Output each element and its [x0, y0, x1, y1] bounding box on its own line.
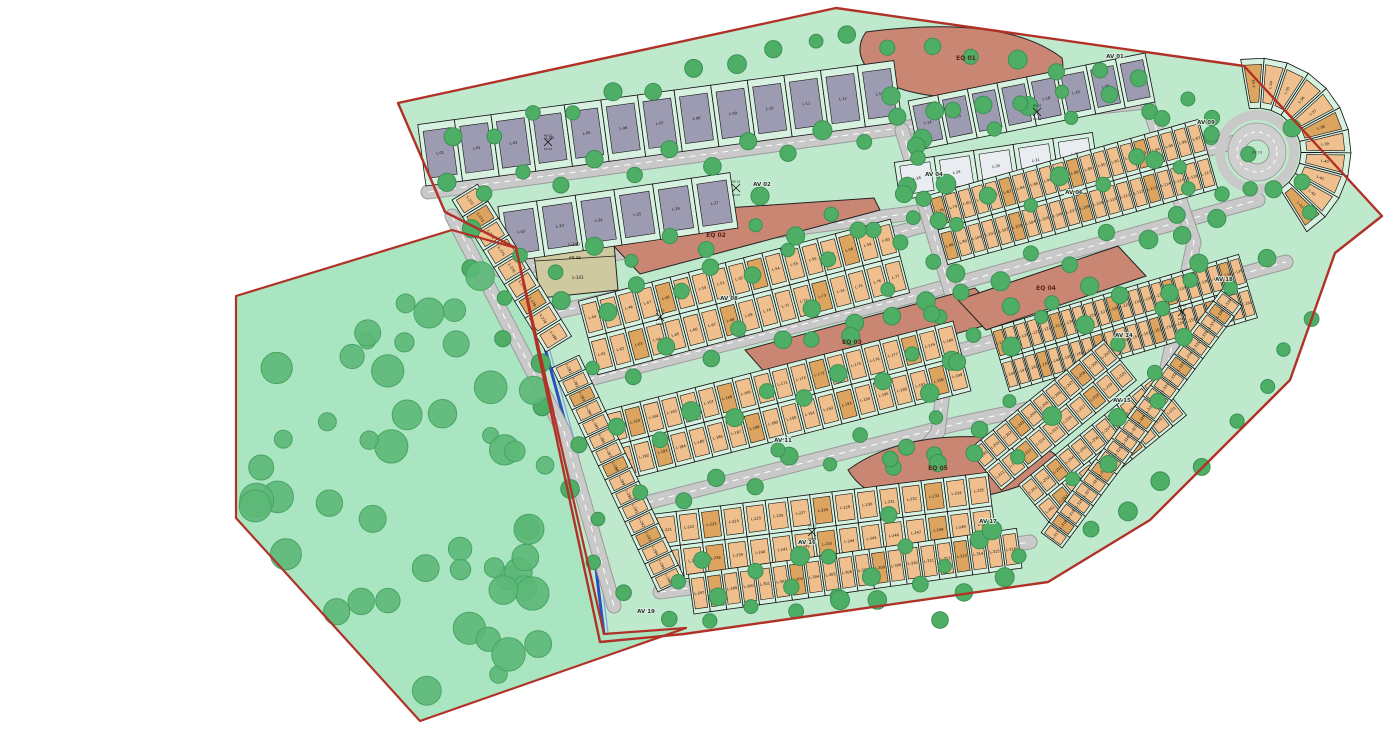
tree-icon: [536, 457, 554, 475]
tree-icon: [1081, 277, 1099, 295]
lot-label: L-33: [1252, 80, 1256, 88]
tree-icon: [704, 158, 722, 176]
tree-icon: [740, 133, 757, 150]
tree-icon: [821, 252, 836, 267]
avenue-label-av18: AV 18: [1215, 277, 1233, 283]
tree-icon: [608, 418, 625, 435]
tree-icon: [796, 390, 812, 406]
tree-icon: [1045, 296, 1059, 310]
tree-icon: [1012, 549, 1026, 563]
tree-icon: [987, 122, 1001, 136]
tree-icon: [924, 306, 940, 322]
equipment-label: EQ 05: [928, 465, 948, 472]
utility-marker-bottom-label: CS 03: [732, 193, 740, 197]
tree-icon: [829, 365, 847, 383]
tree-icon: [1208, 209, 1226, 227]
tree-icon: [694, 552, 711, 569]
tree-icon: [316, 490, 342, 516]
cs-bottom-lot-label: L-341: [572, 275, 584, 280]
tree-icon: [360, 431, 378, 449]
tree-icon: [516, 165, 530, 179]
tree-icon: [866, 222, 881, 237]
avenue-label-av14: AV 14: [1115, 333, 1133, 339]
tree-icon: [1139, 230, 1158, 249]
tree-icon: [838, 26, 855, 43]
tree-icon: [1303, 205, 1317, 219]
tree-icon: [658, 338, 675, 355]
tree-icon: [1083, 521, 1099, 537]
tree-icon: [450, 559, 470, 579]
tree-icon: [676, 493, 692, 509]
tree-icon: [726, 409, 744, 427]
tree-icon: [661, 141, 678, 158]
tree-icon: [881, 507, 897, 523]
tree-icon: [898, 539, 913, 554]
tree-icon: [1023, 246, 1038, 261]
tree-icon: [771, 443, 785, 457]
tree-icon: [1098, 224, 1114, 240]
tree-icon: [949, 354, 966, 371]
utility-marker-bottom-label: CS 03: [1033, 117, 1041, 121]
tree-icon: [1204, 127, 1219, 142]
tree-icon: [1002, 298, 1019, 315]
tree-icon: [489, 576, 518, 605]
tree-icon: [1065, 111, 1078, 124]
tree-icon: [628, 277, 644, 293]
equipment-label: EQ 03: [842, 339, 862, 346]
tree-icon: [1283, 119, 1301, 137]
tree-icon: [784, 579, 799, 594]
tree-icon: [950, 218, 964, 232]
tree-icon: [484, 558, 504, 578]
tree-icon: [526, 106, 541, 121]
tree-icon: [926, 254, 941, 269]
tree-icon: [1150, 393, 1165, 408]
tree-icon: [911, 151, 926, 166]
tree-icon: [881, 283, 895, 297]
tree-icon: [813, 121, 832, 140]
tree-icon: [991, 272, 1010, 291]
tree-icon: [702, 259, 718, 275]
tree-icon: [274, 430, 292, 448]
avenue-label-av02: AV 02: [753, 182, 771, 188]
tree-icon: [359, 505, 386, 532]
tree-icon: [899, 439, 915, 455]
equipment-label: EQ 01: [956, 55, 976, 62]
tree-icon: [685, 59, 703, 77]
tree-icon: [947, 264, 965, 282]
tree-icon: [412, 676, 441, 705]
tree-icon: [448, 537, 471, 560]
tree-icon: [1013, 96, 1028, 111]
tree-icon: [375, 430, 408, 463]
tree-icon: [759, 384, 774, 399]
tree-icon: [744, 267, 760, 283]
tree-icon: [1055, 85, 1068, 98]
tree-icon: [585, 237, 603, 255]
tree-icon: [966, 445, 983, 462]
tree-icon: [857, 135, 872, 150]
tree-icon: [1035, 310, 1048, 323]
tree-icon: [1002, 337, 1021, 356]
tree-icon: [625, 369, 641, 385]
tree-icon: [1024, 199, 1037, 212]
tree-icon: [971, 421, 988, 438]
tree-icon: [474, 371, 507, 404]
tree-icon: [1043, 407, 1062, 426]
tree-icon: [340, 344, 364, 368]
tree-icon: [443, 331, 469, 357]
tree-icon: [1050, 167, 1069, 186]
tree-icon: [966, 328, 981, 343]
tree-icon: [945, 102, 961, 118]
tree-icon: [809, 34, 823, 48]
tree-icon: [1183, 273, 1197, 287]
tree-icon: [1119, 502, 1138, 521]
avenue-label-av09: AV 09: [1197, 120, 1215, 126]
tree-icon: [791, 547, 810, 566]
tree-icon: [553, 177, 569, 193]
tree-icon: [781, 243, 795, 257]
tree-icon: [1161, 284, 1178, 301]
tree-icon: [1076, 316, 1094, 334]
utility-marker-top-label: HU 10: [1178, 304, 1187, 308]
tree-icon: [1181, 92, 1195, 106]
tree-icon: [348, 588, 374, 614]
tree-icon: [1182, 182, 1196, 196]
tree-icon: [1173, 227, 1191, 245]
tree-icon: [953, 284, 969, 300]
tree-icon: [513, 248, 527, 262]
tree-icon: [249, 455, 274, 480]
tree-icon: [671, 575, 685, 589]
tree-icon: [895, 185, 912, 202]
tree-icon: [1155, 301, 1170, 316]
tree-icon: [355, 320, 381, 346]
tree-icon: [1258, 249, 1276, 267]
tree-icon: [1168, 207, 1185, 224]
tree-icon: [1130, 70, 1147, 87]
tree-icon: [396, 294, 415, 313]
utility-marker-top-label: HU 10: [656, 309, 665, 313]
tree-icon: [995, 568, 1014, 587]
tree-icon: [627, 167, 642, 182]
avenue-label-av11: AV 11: [774, 438, 792, 444]
utility-marker-top-label: HU 10: [544, 134, 553, 138]
tree-icon: [774, 331, 792, 349]
tree-icon: [850, 222, 866, 238]
equipment-label: EQ 02: [706, 232, 726, 239]
tree-icon: [497, 291, 511, 305]
tree-icon: [916, 191, 931, 206]
tree-icon: [780, 145, 796, 161]
tree-icon: [1146, 151, 1163, 168]
tree-icon: [747, 479, 763, 495]
tree-icon: [414, 298, 444, 328]
tree-icon: [514, 514, 544, 544]
avenue-label-av19: AV 19: [637, 609, 655, 615]
tree-icon: [932, 612, 949, 629]
tree-icon: [1294, 174, 1310, 190]
tree-icon: [1062, 257, 1078, 273]
tree-icon: [586, 151, 603, 168]
tree-icon: [1096, 177, 1111, 192]
tree-icon: [392, 400, 422, 430]
tree-icon: [505, 441, 526, 462]
site-plan-map: L-01L-02L-03L-04L-05L-06L-07L-08L-09L-10…: [0, 0, 1384, 729]
tree-icon: [512, 544, 539, 571]
tree-icon: [1129, 149, 1145, 165]
tree-icon: [765, 41, 782, 58]
avenue-label-av15: AV 15: [1113, 398, 1131, 404]
tree-icon: [703, 350, 720, 367]
tree-icon: [674, 283, 690, 299]
tree-icon: [599, 303, 617, 321]
tree-icon: [239, 490, 271, 522]
avenue-label-av17: AV 17: [979, 519, 997, 525]
tree-icon: [924, 38, 940, 54]
tree-icon: [495, 331, 511, 347]
tree-icon: [548, 265, 563, 280]
tree-icon: [443, 299, 466, 322]
tree-icon: [1243, 182, 1257, 196]
tree-icon: [1261, 380, 1275, 394]
tree-icon: [731, 321, 746, 336]
tree-icon: [975, 96, 992, 113]
tree-icon: [804, 332, 819, 347]
tree-icon: [270, 539, 301, 570]
tree-icon: [1154, 111, 1170, 127]
tree-icon: [1008, 50, 1027, 69]
tree-icon: [728, 55, 747, 74]
tree-icon: [862, 568, 880, 586]
tree-icon: [883, 307, 901, 325]
tree-icon: [318, 413, 336, 431]
tree-icon: [1173, 161, 1186, 174]
utility-marker-top-label: HU 10: [732, 180, 741, 184]
tree-icon: [921, 384, 939, 402]
tree-icon: [1011, 450, 1025, 464]
tree-icon: [930, 212, 946, 228]
tree-icon: [803, 300, 820, 317]
utility-marker-bottom-label: CS 03: [808, 537, 816, 541]
utility-marker-bottom-label: CS 03: [544, 147, 552, 151]
tree-icon: [586, 361, 599, 374]
utility-marker-bottom-label: CS 03: [656, 322, 664, 326]
tree-icon: [652, 432, 668, 448]
tree-icon: [466, 262, 495, 291]
tree-icon: [1003, 395, 1016, 408]
tree-icon: [893, 235, 908, 250]
tree-icon: [889, 108, 906, 125]
tree-icon: [751, 187, 769, 205]
tree-icon: [880, 40, 895, 55]
tree-icon: [709, 588, 727, 606]
site-plan-page: L-01L-02L-03L-04L-05L-06L-07L-08L-09L-10…: [0, 0, 1384, 729]
tree-icon: [823, 458, 836, 471]
tree-icon: [912, 576, 928, 592]
avenue-label-av06: AV 06: [1065, 190, 1083, 196]
tree-icon: [882, 451, 898, 467]
tree-icon: [682, 402, 701, 421]
tree-icon: [748, 563, 763, 578]
tree-icon: [1277, 343, 1290, 356]
tree-icon: [698, 242, 714, 258]
tree-icon: [645, 83, 662, 100]
utility-marker-top-label: HU 10: [808, 524, 817, 528]
tree-icon: [372, 355, 404, 387]
tree-icon: [438, 173, 456, 191]
tree-icon: [938, 560, 951, 573]
tree-icon: [525, 631, 552, 658]
tree-icon: [487, 129, 502, 144]
tree-icon: [853, 428, 868, 443]
utility-marker-bottom-label: CS 03: [1178, 317, 1186, 321]
tree-icon: [428, 400, 456, 428]
avenue-label-av01: AV 01: [1106, 54, 1124, 60]
avenue-label-av08: AV 08: [720, 296, 738, 302]
tree-icon: [1147, 365, 1162, 380]
tree-icon: [1100, 455, 1117, 472]
tree-icon: [821, 549, 836, 564]
tree-icon: [492, 638, 525, 671]
tree-icon: [1265, 181, 1282, 198]
tree-icon: [979, 187, 996, 204]
tree-icon: [412, 555, 439, 582]
avenue-label-av04: AV 04: [925, 172, 943, 178]
tree-icon: [444, 128, 462, 146]
tree-icon: [906, 211, 920, 225]
tree-icon: [261, 352, 292, 383]
utility-marker-top-label: HU 10: [1033, 104, 1042, 108]
tree-icon: [1215, 187, 1229, 201]
tree-icon: [929, 411, 942, 424]
tree-icon: [708, 469, 725, 486]
tree-icon: [476, 186, 491, 201]
tree-icon: [1066, 472, 1080, 486]
tree-icon: [376, 588, 400, 612]
tree-icon: [744, 600, 758, 614]
tree-icon: [604, 83, 622, 101]
tree-icon: [703, 614, 717, 628]
tree-icon: [324, 599, 350, 625]
tree-icon: [905, 347, 919, 361]
tree-icon: [1048, 64, 1064, 80]
tree-icon: [926, 102, 944, 120]
tree-icon: [824, 207, 838, 221]
tree-icon: [1230, 414, 1244, 428]
cs-center-label: CS 12: [569, 256, 581, 260]
roundabout-label: AV 10: [1252, 150, 1263, 154]
tree-icon: [874, 373, 891, 390]
tree-icon: [571, 437, 587, 453]
tree-icon: [749, 219, 762, 232]
tree-icon: [1175, 329, 1192, 346]
tree-icon: [633, 485, 648, 500]
tree-icon: [566, 106, 580, 120]
tree-icon: [787, 227, 805, 245]
cs-top-lot-label: L-340: [568, 242, 580, 247]
tree-icon: [831, 591, 850, 610]
tree-icon: [662, 228, 677, 243]
tree-icon: [1109, 409, 1127, 427]
tree-icon: [1093, 63, 1108, 78]
tree-icon: [616, 585, 632, 601]
tree-icon: [662, 611, 678, 627]
tree-icon: [516, 577, 549, 610]
tree-icon: [1101, 86, 1118, 103]
tree-icon: [395, 333, 414, 352]
tree-icon: [591, 512, 605, 526]
tree-icon: [1151, 472, 1170, 491]
tree-icon: [1111, 287, 1128, 304]
equipment-label: EQ 04: [1036, 285, 1056, 292]
tree-icon: [1190, 254, 1208, 272]
tree-icon: [882, 87, 900, 105]
tree-icon: [552, 292, 570, 310]
tree-icon: [625, 254, 638, 267]
